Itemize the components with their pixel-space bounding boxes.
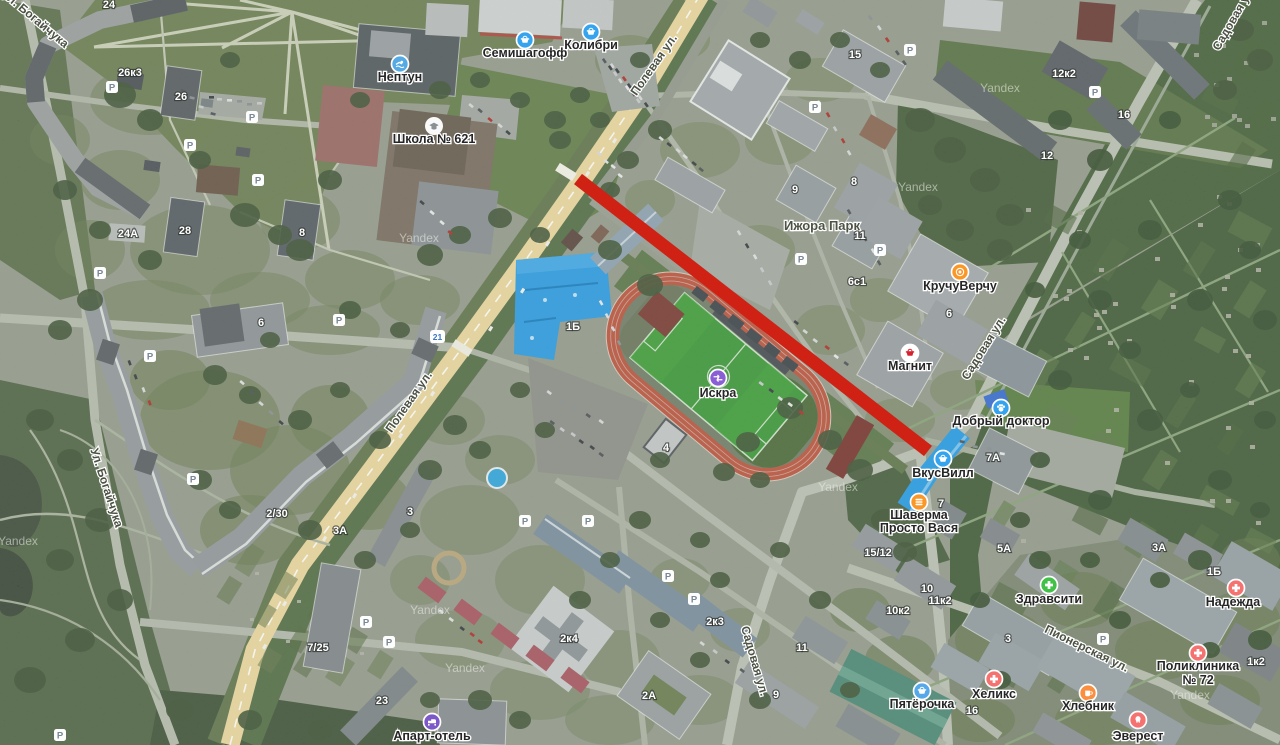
svg-text:Добрый доктор: Добрый доктор (953, 414, 1050, 428)
svg-text:8: 8 (851, 176, 857, 188)
svg-text:12: 12 (1041, 150, 1053, 162)
svg-text:24: 24 (103, 0, 116, 11)
svg-text:Искра: Искра (700, 386, 738, 400)
svg-text:Школа № 621: Школа № 621 (393, 132, 476, 146)
svg-text:№ 72: № 72 (1182, 673, 1213, 687)
svg-text:Yandex: Yandex (0, 534, 38, 548)
svg-text:P: P (190, 475, 197, 486)
svg-text:1Б: 1Б (566, 321, 580, 333)
svg-text:Магнит: Магнит (888, 359, 932, 373)
svg-text:6: 6 (258, 317, 264, 329)
svg-text:Yandex: Yandex (1170, 688, 1210, 702)
svg-text:КручуВерчу: КручуВерчу (923, 279, 997, 293)
svg-text:P: P (665, 572, 672, 583)
svg-text:5А: 5А (997, 543, 1011, 555)
svg-text:P: P (249, 113, 256, 124)
svg-text:10к2: 10к2 (886, 605, 910, 617)
svg-text:Колибри: Колибри (564, 38, 618, 52)
svg-text:26к3: 26к3 (118, 67, 142, 79)
svg-text:P: P (57, 731, 64, 742)
svg-text:P: P (336, 316, 343, 327)
svg-text:26: 26 (175, 91, 187, 103)
svg-text:16: 16 (1118, 109, 1130, 121)
svg-text:P: P (585, 517, 592, 528)
svg-text:Yandex: Yandex (445, 661, 485, 675)
svg-text:3: 3 (1005, 633, 1011, 645)
svg-text:6с1: 6с1 (848, 276, 866, 288)
svg-text:Yandex: Yandex (898, 180, 938, 194)
svg-text:6: 6 (946, 308, 952, 320)
svg-text:23: 23 (376, 695, 388, 707)
svg-text:Шаверма: Шаверма (890, 508, 949, 522)
svg-text:Yandex: Yandex (399, 231, 439, 245)
svg-text:8: 8 (299, 227, 305, 239)
svg-text:Хеликс: Хеликс (972, 687, 1016, 701)
svg-text:Нептун: Нептун (378, 70, 422, 84)
svg-text:P: P (255, 176, 262, 187)
svg-text:21: 21 (433, 332, 443, 342)
svg-text:Пятёрочка: Пятёрочка (890, 697, 956, 711)
svg-text:2к4: 2к4 (560, 633, 579, 645)
svg-text:9: 9 (773, 689, 779, 701)
svg-text:Хлебник: Хлебник (1062, 699, 1115, 713)
svg-text:11: 11 (796, 642, 808, 654)
svg-text:P: P (147, 352, 154, 363)
svg-text:Yandex: Yandex (818, 480, 858, 494)
svg-text:Поликлиника: Поликлиника (1157, 659, 1240, 673)
svg-text:P: P (1092, 88, 1099, 99)
svg-text:15: 15 (849, 49, 861, 61)
svg-text:11: 11 (854, 230, 866, 242)
svg-text:2/30: 2/30 (266, 508, 287, 520)
svg-text:P: P (798, 255, 805, 266)
svg-text:24А: 24А (118, 228, 138, 240)
svg-text:ВкусВилл: ВкусВилл (912, 466, 974, 480)
svg-text:P: P (386, 638, 393, 649)
svg-text:3А: 3А (333, 525, 347, 537)
svg-text:28: 28 (179, 225, 191, 237)
svg-text:Семишагофф: Семишагофф (483, 46, 568, 60)
svg-text:P: P (97, 269, 104, 280)
svg-text:1Б: 1Б (1207, 566, 1221, 578)
svg-text:Yandex: Yandex (410, 603, 450, 617)
svg-text:7А: 7А (986, 452, 1000, 464)
svg-text:P: P (691, 595, 698, 606)
svg-text:Эверест: Эверест (1113, 729, 1164, 743)
svg-text:P: P (187, 141, 194, 152)
svg-text:Надежда: Надежда (1206, 595, 1261, 609)
svg-text:2А: 2А (642, 690, 656, 702)
svg-text:Здравсити: Здравсити (1016, 592, 1082, 606)
svg-text:1к2: 1к2 (1247, 656, 1265, 668)
svg-text:Ижора Парк: Ижора Парк (784, 218, 860, 233)
svg-text:7/25: 7/25 (307, 642, 328, 654)
svg-text:P: P (363, 618, 370, 629)
svg-text:3: 3 (407, 506, 413, 518)
svg-text:10: 10 (921, 583, 933, 595)
svg-text:16: 16 (966, 705, 978, 717)
svg-text:P: P (522, 517, 529, 528)
svg-text:12к2: 12к2 (1052, 68, 1076, 80)
svg-text:Просто Вася: Просто Вася (880, 521, 958, 535)
svg-text:15/12: 15/12 (864, 547, 892, 559)
svg-text:3А: 3А (1152, 542, 1166, 554)
svg-text:P: P (812, 103, 819, 114)
svg-text:Yandex: Yandex (980, 81, 1020, 95)
svg-text:11к2: 11к2 (928, 595, 951, 607)
svg-text:Апарт-отель: Апарт-отель (393, 729, 471, 743)
svg-text:4: 4 (663, 442, 670, 454)
svg-text:P: P (1100, 635, 1107, 646)
svg-text:9: 9 (792, 184, 798, 196)
svg-text:P: P (877, 246, 884, 257)
svg-text:2к3: 2к3 (706, 616, 724, 628)
svg-text:P: P (109, 83, 116, 94)
svg-text:P: P (907, 46, 914, 57)
